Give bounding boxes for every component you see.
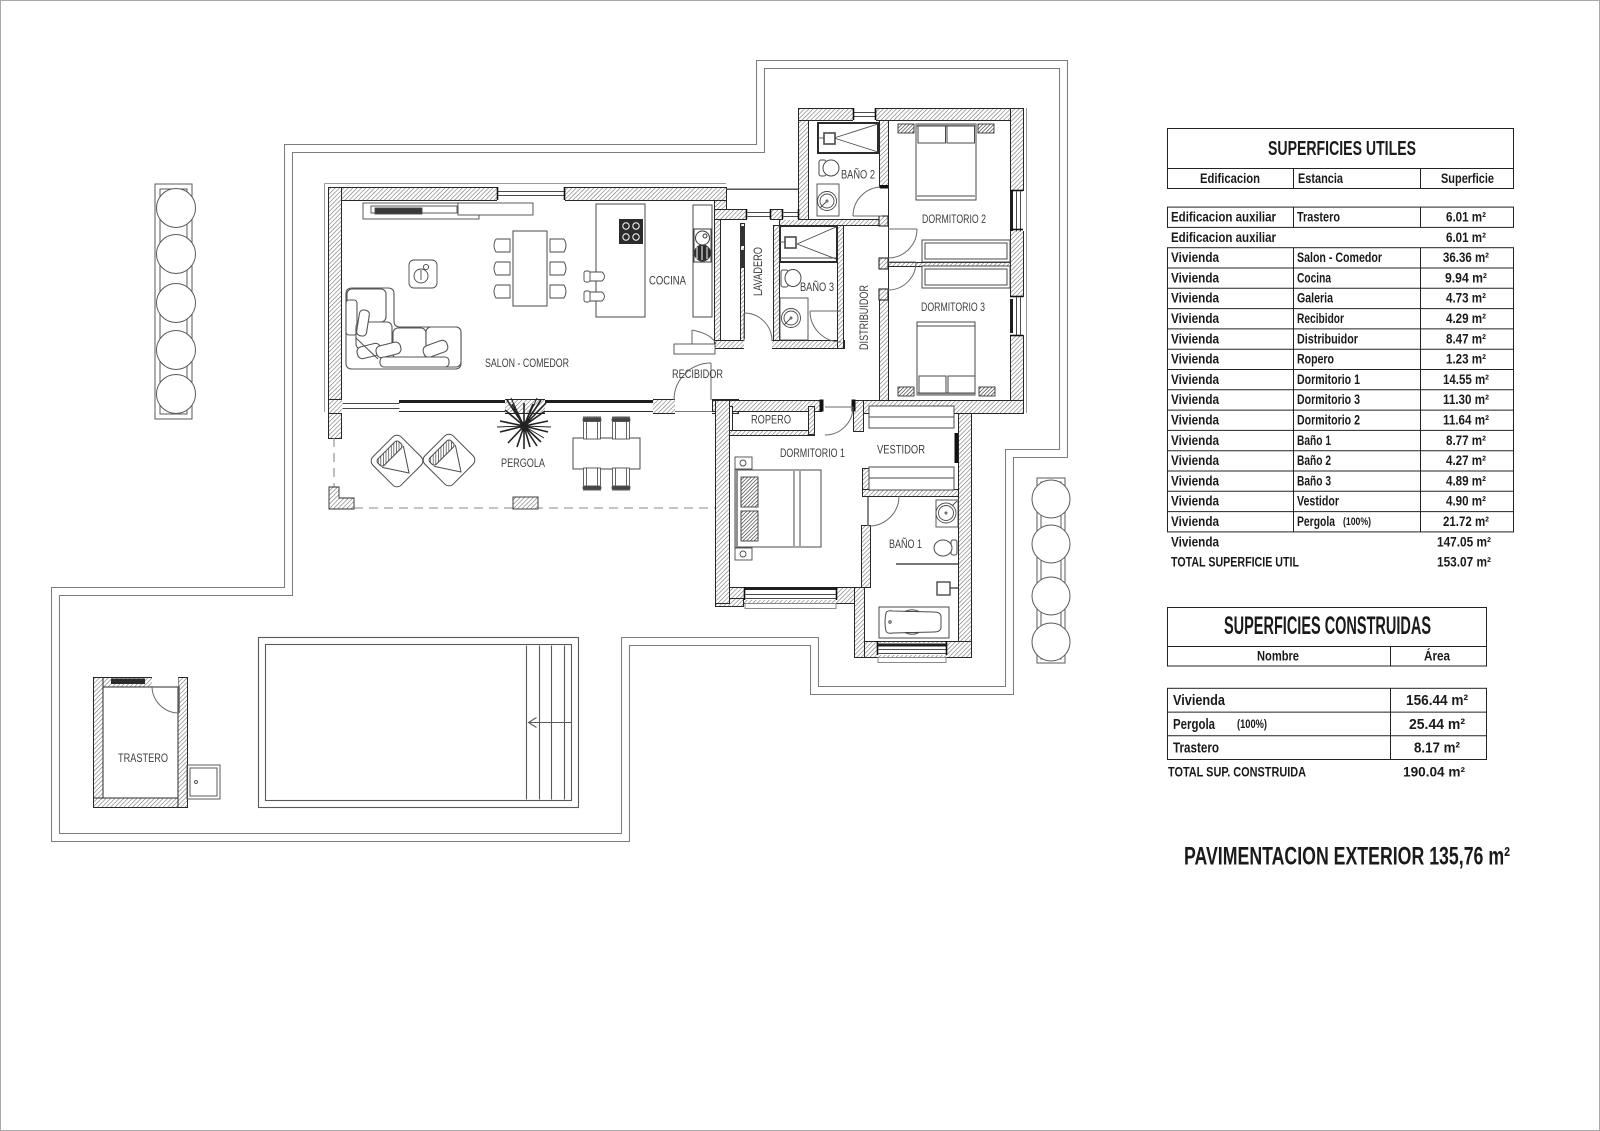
svg-text:6.01 m²: 6.01 m² [1446,210,1486,225]
svg-text:Pergola: Pergola [1297,514,1335,529]
svg-text:Vivienda: Vivienda [1171,453,1219,468]
svg-text:Vivienda: Vivienda [1171,392,1219,407]
svg-text:Vivienda: Vivienda [1171,291,1219,306]
svg-text:Vivienda: Vivienda [1171,250,1219,265]
svg-text:Superficie: Superficie [1441,170,1494,186]
svg-text:Dormitorio 3: Dormitorio 3 [1297,392,1360,407]
svg-text:Vivienda: Vivienda [1173,692,1226,709]
svg-text:Dormitorio 1: Dormitorio 1 [1297,372,1360,387]
svg-text:Edificacion auxiliar: Edificacion auxiliar [1171,230,1277,245]
svg-text:Vivienda: Vivienda [1171,413,1219,428]
svg-text:VESTIDOR: VESTIDOR [877,443,925,457]
svg-text:Vivienda: Vivienda [1171,331,1219,346]
svg-text:TRASTERO: TRASTERO [118,751,168,765]
svg-text:Pergola: Pergola [1173,716,1215,733]
svg-text:Estancia: Estancia [1298,170,1343,186]
svg-text:8.47 m²: 8.47 m² [1446,331,1486,346]
svg-text:9.94 m²: 9.94 m² [1445,270,1487,285]
svg-text:RECIBIDOR: RECIBIDOR [672,367,723,381]
svg-text:Vivienda: Vivienda [1171,311,1219,326]
svg-text:6.01 m²: 6.01 m² [1446,230,1486,245]
svg-text:Vivienda: Vivienda [1171,494,1219,509]
svg-text:COCINA: COCINA [649,274,686,288]
svg-text:Recibidor: Recibidor [1297,311,1345,326]
svg-text:ROPERO: ROPERO [751,413,791,427]
svg-text:Vivienda: Vivienda [1171,473,1219,488]
svg-text:4.73 m²: 4.73 m² [1446,291,1486,306]
svg-text:25.44 m²: 25.44 m² [1409,716,1465,733]
svg-text:PAVIMENTACION EXTERIOR 135,76: PAVIMENTACION EXTERIOR 135,76 m² [1184,843,1510,871]
svg-text:SALON - COMEDOR: SALON - COMEDOR [485,356,569,370]
svg-text:11.30 m²: 11.30 m² [1443,392,1489,407]
svg-text:8.17 m²: 8.17 m² [1414,740,1460,757]
svg-text:Ropero: Ropero [1297,352,1334,367]
svg-text:BAÑO 3: BAÑO 3 [800,280,834,294]
svg-text:Vivienda: Vivienda [1171,352,1219,367]
svg-text:Vivienda: Vivienda [1171,270,1219,285]
svg-text:Vivienda: Vivienda [1171,514,1219,529]
svg-text:Nombre: Nombre [1257,648,1299,664]
svg-text:147.05 m²: 147.05 m² [1437,534,1491,549]
svg-text:4.90 m²: 4.90 m² [1446,494,1486,509]
svg-text:Salon - Comedor: Salon - Comedor [1297,250,1383,265]
svg-text:Baño 3: Baño 3 [1297,473,1331,488]
svg-text:Distribuidor: Distribuidor [1297,331,1359,346]
svg-text:Baño 2: Baño 2 [1297,453,1331,468]
svg-text:Galeria: Galeria [1297,291,1333,306]
svg-text:156.44 m²: 156.44 m² [1406,692,1468,709]
svg-text:Vivienda: Vivienda [1171,534,1219,549]
svg-text:Edificacion: Edificacion [1200,170,1260,186]
svg-text:TOTAL SUPERFICIE UTIL: TOTAL SUPERFICIE UTIL [1171,555,1299,570]
svg-text:TOTAL SUP. CONSTRUIDA: TOTAL SUP. CONSTRUIDA [1168,765,1306,780]
svg-text:36.36 m²: 36.36 m² [1443,250,1489,265]
svg-text:4.29 m²: 4.29 m² [1446,311,1486,326]
svg-text:(100%): (100%) [1237,719,1267,731]
svg-text:Vivienda: Vivienda [1171,372,1219,387]
svg-text:14.55 m²: 14.55 m² [1443,372,1489,387]
svg-text:4.27 m²: 4.27 m² [1446,453,1486,468]
svg-text:190.04 m²: 190.04 m² [1403,765,1466,780]
svg-text:DISTRIBUIDOR: DISTRIBUIDOR [857,285,871,350]
svg-text:BAÑO 2: BAÑO 2 [841,168,875,182]
svg-text:Cocina: Cocina [1297,270,1331,285]
svg-text:PERGOLA: PERGOLA [501,456,545,470]
svg-text:153.07 m²: 153.07 m² [1437,555,1491,570]
svg-text:BAÑO 1: BAÑO 1 [889,537,922,551]
svg-text:DORMITORIO 1: DORMITORIO 1 [780,446,845,460]
svg-text:DORMITORIO 2: DORMITORIO 2 [922,212,986,226]
svg-text:(100%): (100%) [1343,516,1371,528]
svg-text:Baño 1: Baño 1 [1297,433,1331,448]
svg-text:Área: Área [1424,648,1450,664]
svg-text:21.72 m²: 21.72 m² [1443,514,1489,529]
svg-text:Trastero: Trastero [1173,740,1219,757]
svg-text:8.77 m²: 8.77 m² [1446,433,1486,448]
svg-text:Dormitorio 2: Dormitorio 2 [1297,413,1360,428]
svg-text:SUPERFICIES CONSTRUIDAS: SUPERFICIES CONSTRUIDAS [1224,612,1431,640]
svg-text:LAVADERO: LAVADERO [751,247,765,296]
svg-text:Vivienda: Vivienda [1171,433,1219,448]
svg-text:Trastero: Trastero [1297,210,1340,225]
svg-text:DORMITORIO 3: DORMITORIO 3 [921,300,985,314]
svg-text:SUPERFICIES UTILES: SUPERFICIES UTILES [1268,138,1416,160]
svg-text:Edificacion auxiliar: Edificacion auxiliar [1171,210,1277,225]
svg-text:1.23 m²: 1.23 m² [1446,352,1486,367]
svg-text:11.64 m²: 11.64 m² [1443,413,1489,428]
svg-text:Vestidor: Vestidor [1297,494,1340,509]
svg-text:4.89 m²: 4.89 m² [1446,473,1486,488]
